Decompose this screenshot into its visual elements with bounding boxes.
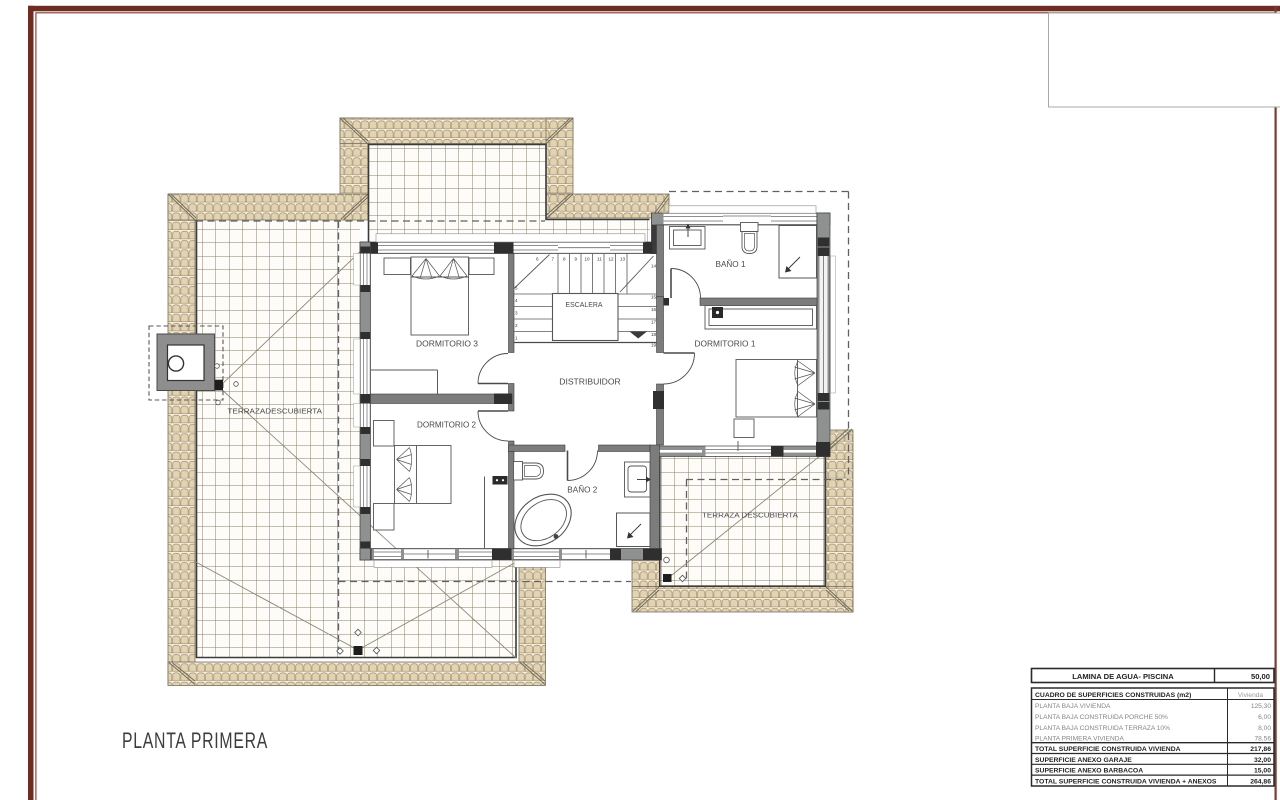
svg-text:16: 16 — [651, 307, 657, 312]
svg-text:SUPERFICIE ANEXO BARBACOA: SUPERFICIE ANEXO BARBACOA — [1035, 768, 1143, 775]
svg-text:7: 7 — [552, 257, 555, 262]
svg-text:12: 12 — [609, 257, 615, 262]
svg-text:ESCALERA: ESCALERA — [566, 300, 603, 309]
svg-text:6: 6 — [536, 257, 539, 262]
svg-text:15: 15 — [651, 295, 657, 300]
svg-text:10: 10 — [585, 257, 591, 262]
svg-text:DORMITORIO 2: DORMITORIO 2 — [417, 420, 476, 429]
svg-text:217,86: 217,86 — [1250, 746, 1271, 753]
svg-text:1: 1 — [515, 336, 518, 341]
svg-text:PLANTA BAJA VIVIENDA: PLANTA BAJA VIVIENDA — [1035, 703, 1111, 710]
svg-text:PLANTA BAJA CONSTRUIDA TERRAZA: PLANTA BAJA CONSTRUIDA TERRAZA 10% — [1035, 725, 1170, 732]
svg-text:PLANTA PRIMERA VIVIENDA: PLANTA PRIMERA VIVIENDA — [1035, 736, 1125, 743]
svg-text:BAÑO 2: BAÑO 2 — [567, 486, 597, 495]
svg-text:PLANTA PRIMERA: PLANTA PRIMERA — [122, 728, 268, 753]
svg-text:8,00: 8,00 — [1258, 725, 1271, 732]
svg-text:TERRAZA DESCUBIERTA: TERRAZA DESCUBIERTA — [702, 510, 798, 519]
svg-text:TOTAL SUPERFICIE CONSTRUIDA VI: TOTAL SUPERFICIE CONSTRUIDA VIVIENDA — [1035, 746, 1181, 753]
svg-text:BAÑO 1: BAÑO 1 — [716, 260, 746, 269]
svg-text:19: 19 — [651, 343, 657, 348]
svg-text:DORMITORIO 3: DORMITORIO 3 — [416, 340, 478, 349]
svg-text:18: 18 — [651, 332, 657, 337]
svg-text:DORMITORIO 1: DORMITORIO 1 — [695, 339, 756, 348]
svg-text:15,00: 15,00 — [1254, 768, 1271, 775]
svg-text:LAMINA DE AGUA- PISCINA: LAMINA DE AGUA- PISCINA — [1072, 672, 1174, 681]
svg-text:50,00: 50,00 — [1251, 672, 1270, 681]
svg-text:9: 9 — [575, 257, 578, 262]
svg-text:264,86: 264,86 — [1250, 778, 1271, 785]
svg-text:3: 3 — [515, 311, 518, 316]
svg-text:14: 14 — [651, 264, 657, 269]
svg-text:8: 8 — [563, 257, 566, 262]
svg-text:125,30: 125,30 — [1251, 703, 1272, 710]
svg-text:32,00: 32,00 — [1254, 757, 1271, 764]
svg-text:TOTAL SUPERFICIE CONSTRUIDA VI: TOTAL SUPERFICIE CONSTRUIDA VIVIENDA + A… — [1035, 778, 1217, 785]
svg-text:13: 13 — [620, 257, 626, 262]
svg-text:TERRAZADESCUBIERTA: TERRAZADESCUBIERTA — [228, 407, 323, 416]
svg-text:5: 5 — [515, 286, 518, 291]
svg-text:CUADRO DE SUPERFICIES CONSTRUI: CUADRO DE SUPERFICIES CONSTRUIDAS (m2) — [1035, 692, 1191, 699]
svg-text:DISTRIBUIDOR: DISTRIBUIDOR — [559, 378, 621, 387]
svg-text:2: 2 — [515, 323, 518, 328]
svg-text:11: 11 — [597, 257, 602, 262]
svg-text:17: 17 — [651, 320, 657, 325]
svg-text:PLANTA BAJA CONSTRUIDA PORCHE: PLANTA BAJA CONSTRUIDA PORCHE 50% — [1035, 714, 1168, 721]
svg-text:Vivienda: Vivienda — [1238, 692, 1264, 699]
svg-text:6,00: 6,00 — [1258, 714, 1271, 721]
svg-text:SUPERFICIE ANEXO GARAJE: SUPERFICIE ANEXO GARAJE — [1035, 757, 1132, 764]
svg-text:4: 4 — [515, 298, 518, 303]
svg-text:78,56: 78,56 — [1254, 736, 1271, 743]
